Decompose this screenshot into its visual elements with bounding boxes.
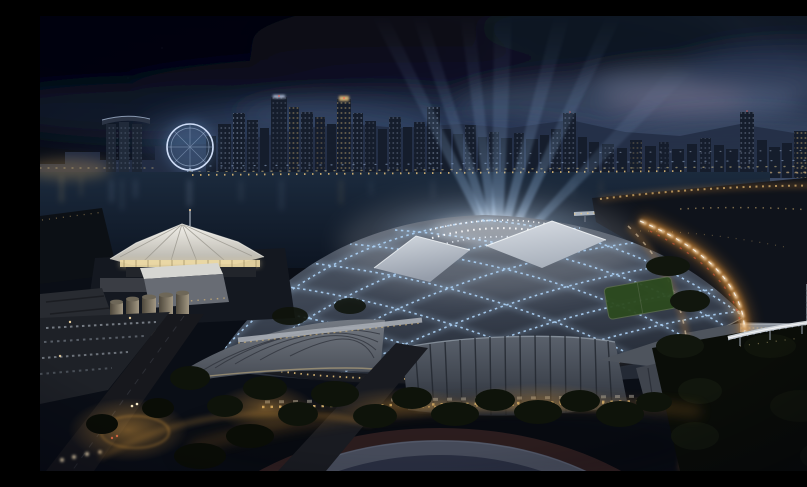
stadium-night-photo	[40, 16, 807, 471]
vignette	[40, 16, 807, 471]
scene-canvas	[40, 16, 807, 471]
